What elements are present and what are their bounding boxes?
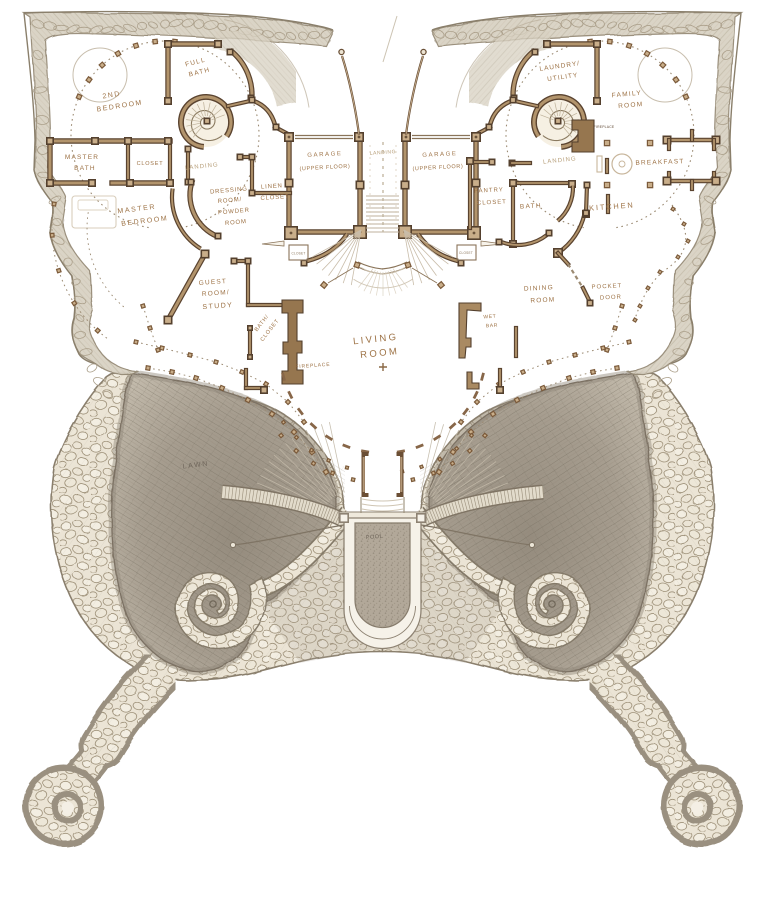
svg-text:CLOSET: CLOSET — [459, 251, 473, 255]
svg-text:BATH: BATH — [520, 202, 542, 210]
svg-text:MASTER: MASTER — [65, 154, 99, 161]
svg-text:CLOSET: CLOSET — [292, 252, 306, 256]
svg-text:WET: WET — [483, 314, 496, 321]
svg-text:BAR: BAR — [486, 323, 498, 330]
svg-text:POOL: POOL — [366, 534, 384, 541]
svg-text:CLOSET: CLOSET — [137, 161, 164, 167]
svg-text:FIREPLACE: FIREPLACE — [594, 125, 615, 129]
svg-text:DOOR: DOOR — [600, 294, 622, 301]
svg-text:ROOM: ROOM — [530, 296, 555, 304]
svg-text:BATH: BATH — [74, 165, 96, 172]
